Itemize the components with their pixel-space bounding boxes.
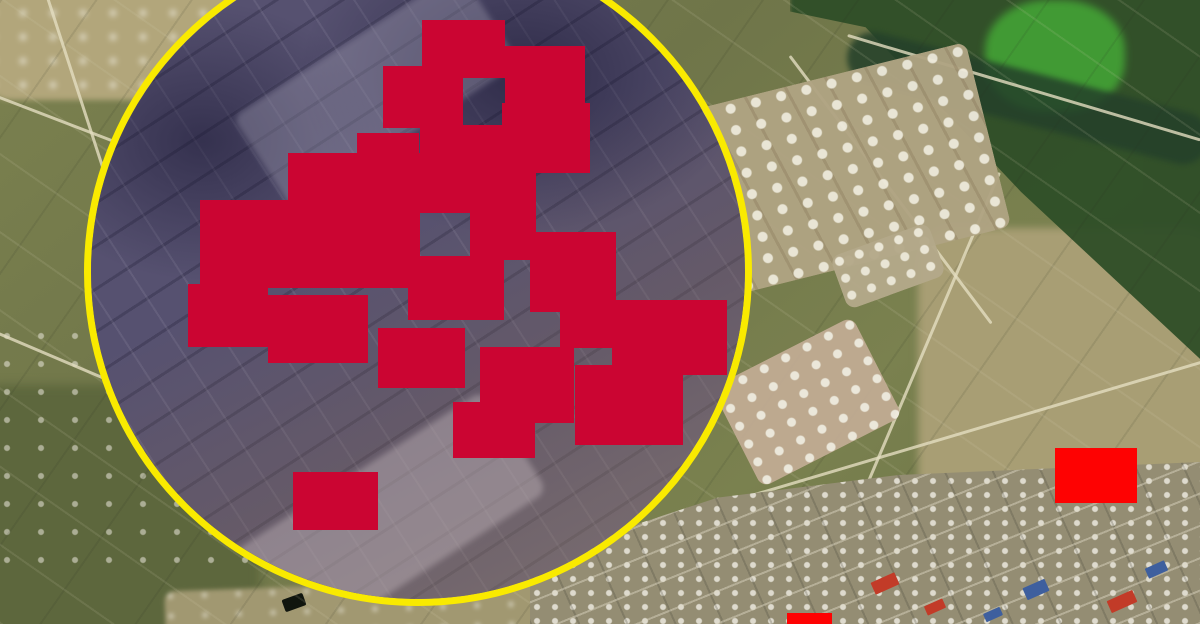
satellite-map	[0, 0, 1200, 624]
alert-layer	[0, 0, 1200, 624]
alert-box	[1055, 448, 1137, 503]
alert-box	[787, 613, 832, 624]
